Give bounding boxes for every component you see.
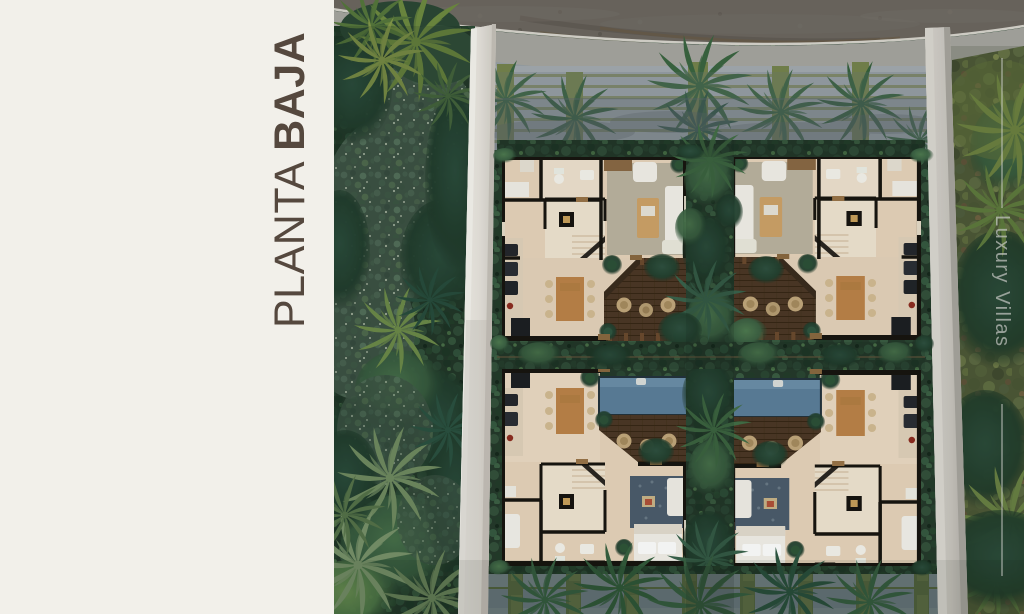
svg-text:PLANTA BAJA: PLANTA BAJA — [266, 32, 314, 328]
svg-text:Luxury Villas: Luxury Villas — [991, 215, 1013, 348]
